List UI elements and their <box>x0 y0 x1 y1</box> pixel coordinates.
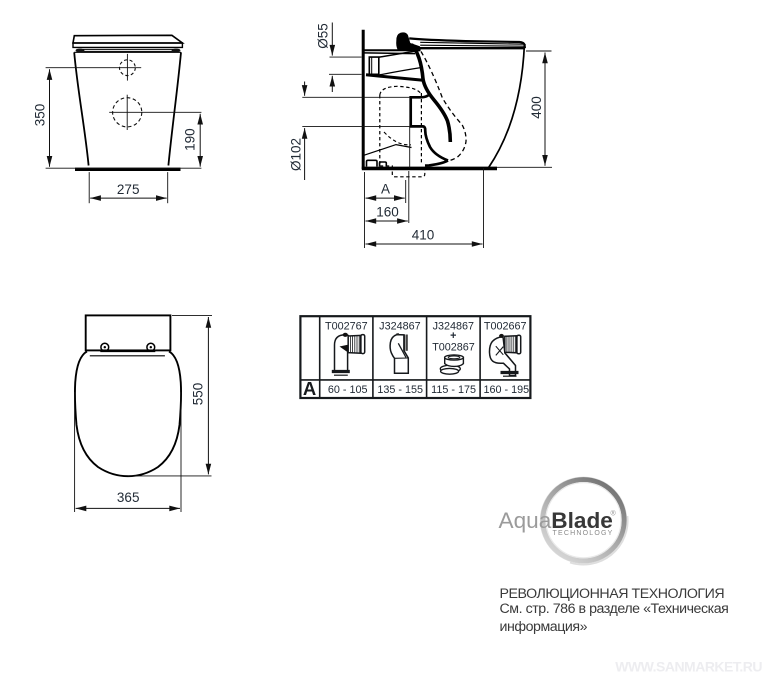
svg-text:См. стр. 786 в разделе «Технич: См. стр. 786 в разделе «Техническая <box>500 601 729 617</box>
svg-text:информация»: информация» <box>500 619 588 635</box>
svg-text:®: ® <box>611 510 617 518</box>
svg-text:T002767: T002767 <box>325 321 368 333</box>
svg-text:T002667: T002667 <box>484 321 527 333</box>
svg-text:WWW.SANMARKET.RU: WWW.SANMARKET.RU <box>615 659 762 675</box>
svg-text:A: A <box>303 378 316 399</box>
svg-text:J324867: J324867 <box>379 321 420 333</box>
svg-text:РЕВОЛЮЦИОННАЯ ТЕХНОЛОГИЯ: РЕВОЛЮЦИОННАЯ ТЕХНОЛОГИЯ <box>500 586 725 602</box>
svg-text:60 - 105: 60 - 105 <box>328 384 368 396</box>
svg-text:A: A <box>381 182 390 197</box>
svg-text:T002867: T002867 <box>432 341 475 353</box>
svg-text:135 - 155: 135 - 155 <box>377 384 423 396</box>
svg-text:160: 160 <box>376 205 399 220</box>
svg-text:400: 400 <box>529 96 544 119</box>
svg-text:Ø102: Ø102 <box>289 138 304 171</box>
svg-text:TECHNOLOGY: TECHNOLOGY <box>553 530 614 537</box>
svg-text:115 - 175: 115 - 175 <box>431 384 476 396</box>
svg-text:190: 190 <box>183 128 198 151</box>
svg-text:275: 275 <box>117 182 140 197</box>
svg-text:+: + <box>450 330 456 342</box>
svg-text:160 - 195: 160 - 195 <box>483 384 529 396</box>
svg-text:410: 410 <box>412 228 435 243</box>
svg-text:365: 365 <box>117 490 140 505</box>
svg-text:350: 350 <box>33 104 48 127</box>
svg-text:550: 550 <box>191 383 206 406</box>
svg-text:Ø55: Ø55 <box>316 23 331 49</box>
